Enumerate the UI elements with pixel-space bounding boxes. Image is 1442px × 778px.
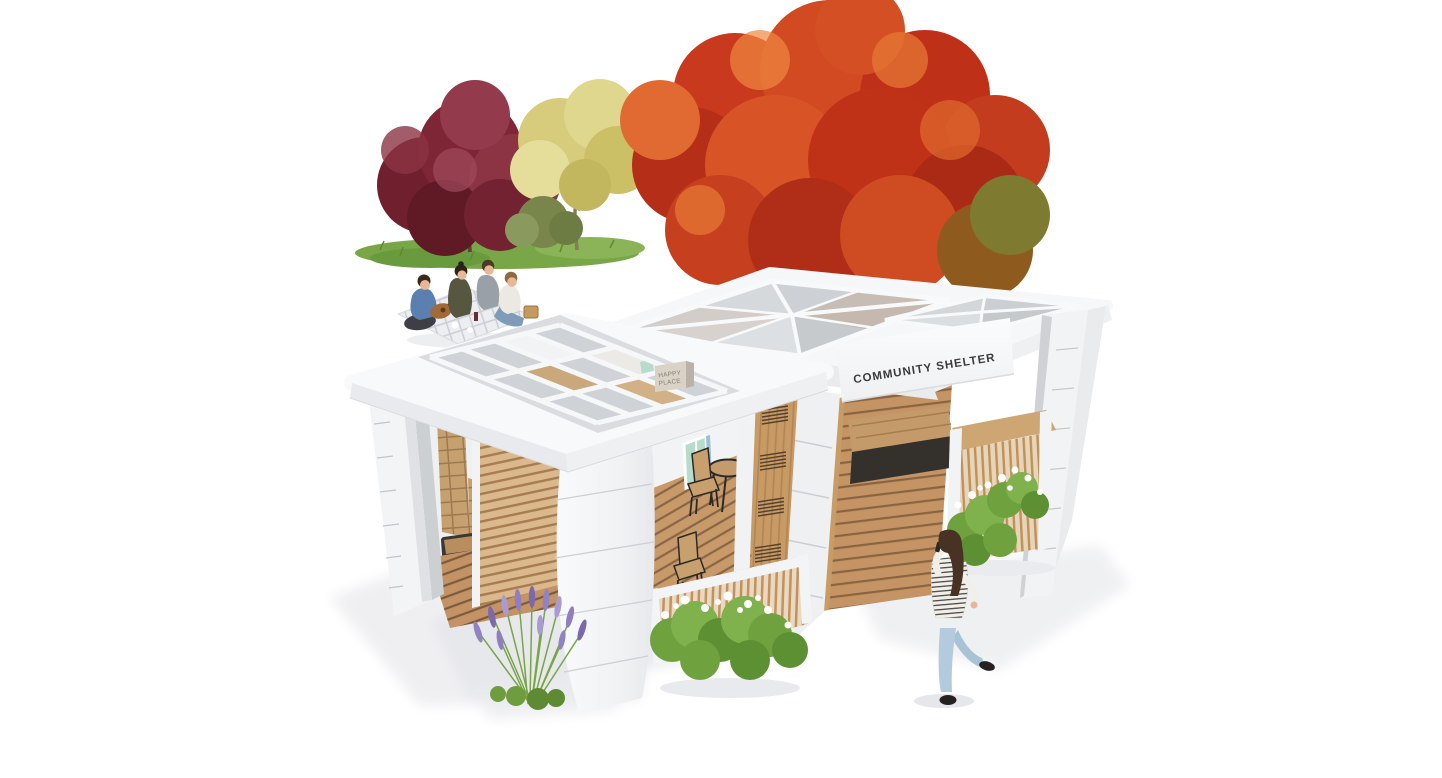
render-scene: COMMUNITY SHELTER <box>0 0 1442 778</box>
red-maple-tree <box>620 0 1050 302</box>
pointing-hand <box>971 602 978 609</box>
architectural-rendering-canvas: COMMUNITY SHELTER <box>0 0 1442 778</box>
curved-corner-wall <box>555 446 655 714</box>
interior-sign-cube: HAPPY PLACE <box>655 361 694 392</box>
